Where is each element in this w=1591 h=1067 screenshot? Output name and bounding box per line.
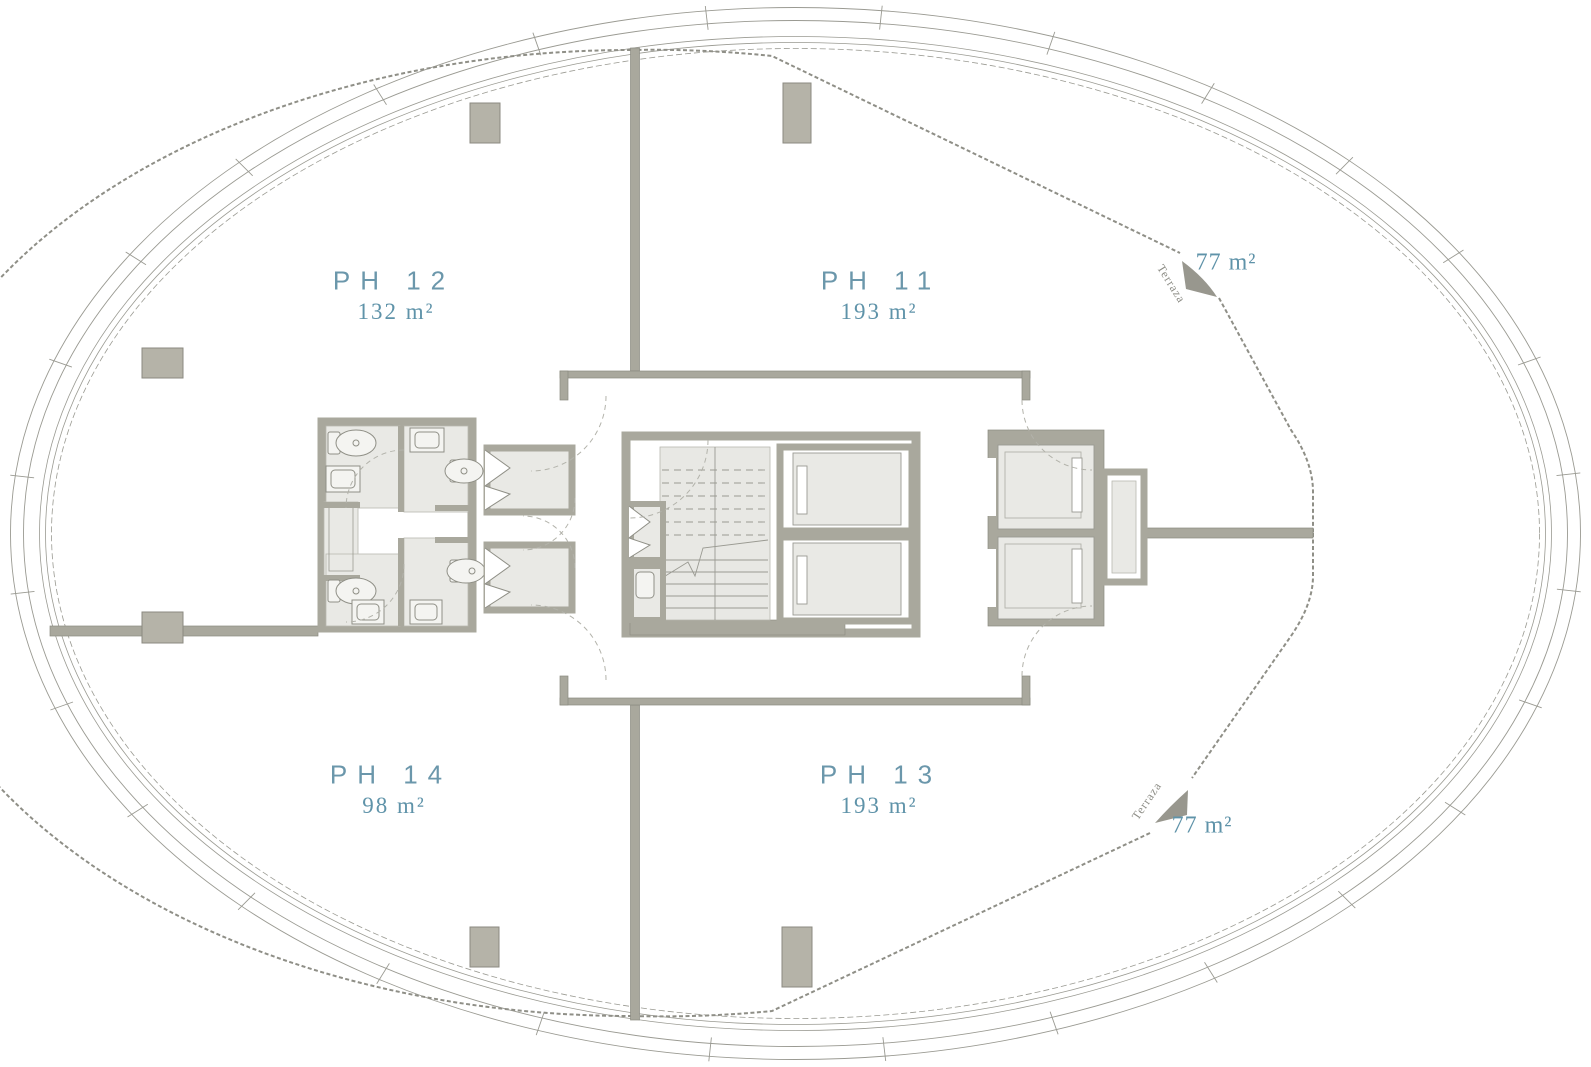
railing-bottomright	[1192, 533, 1313, 778]
facade-tick	[1445, 802, 1465, 815]
elevator-car	[793, 453, 901, 525]
facade-tick	[880, 6, 883, 30]
unit-label-ph12: PH 12	[333, 266, 455, 297]
facade-tick	[1205, 962, 1218, 982]
north-party-wall	[631, 48, 640, 371]
railing-topright	[631, 50, 1180, 253]
lobby-south-wall-return-w	[560, 676, 568, 705]
west-party-wall	[50, 626, 318, 636]
sink-icon	[410, 600, 442, 624]
lobby-south-wall	[560, 698, 1030, 705]
elevator-door-opening	[986, 458, 996, 516]
facade-tick	[128, 804, 148, 817]
east-elevator-block	[986, 430, 1144, 626]
sink-icon	[410, 428, 444, 452]
facade-tick	[883, 1037, 886, 1061]
facade-tick	[1443, 250, 1463, 263]
lobby-north-wall-return-e	[1022, 371, 1030, 400]
unit-area-ph11: 193 m²	[840, 299, 917, 325]
south-party-wall	[631, 705, 640, 1020]
unit-area-ph14: 98 m²	[362, 793, 426, 819]
toilet-icon	[447, 559, 485, 583]
unit-label-ph11: PH 11	[821, 266, 941, 297]
facade-tick	[1338, 891, 1355, 908]
annex-room-inner	[1112, 481, 1136, 573]
railing-bottomright-2	[631, 833, 1150, 1016]
terrace-area-bottom: 77 m²	[1172, 813, 1233, 840]
facade-tick	[705, 6, 708, 30]
unit-label-ph14: PH 14	[330, 760, 452, 791]
stair-block	[626, 436, 916, 635]
elevator-door-panel	[1072, 458, 1082, 512]
wc-sink-icon	[636, 572, 654, 598]
toilet-icon	[328, 430, 376, 456]
facade-tick	[11, 591, 35, 594]
column	[783, 83, 811, 143]
railing-topright-2	[1219, 298, 1313, 533]
floor-plan-canvas: PH 12 132 m² PH 11 193 m² PH 14 98 m² PH…	[0, 0, 1591, 1067]
facade-tick	[1557, 473, 1581, 476]
storage-room	[487, 545, 572, 610]
storage-rooms	[485, 448, 572, 610]
unit-area-ph13: 193 m²	[840, 793, 917, 819]
facade-tick	[377, 963, 390, 983]
terrace-arrows	[1155, 261, 1217, 823]
railing-left-arc	[0, 50, 631, 1016]
column	[782, 927, 812, 987]
column	[142, 348, 183, 378]
stair-block-elevators	[780, 447, 912, 621]
facade-tick	[126, 252, 146, 265]
lobby-north-wall	[560, 371, 1030, 378]
lobby-north-wall-return-w	[560, 371, 568, 400]
door-arc	[531, 605, 606, 680]
unit-area-ph12: 132 m²	[357, 299, 434, 325]
lobby-south-wall-return-e	[1022, 676, 1030, 705]
bathroom-block	[322, 422, 572, 628]
terrace-area-top: 77 m²	[1196, 250, 1257, 277]
elevator-car	[793, 543, 901, 615]
elevator-door-opening	[986, 549, 996, 607]
facade-tick	[1202, 83, 1215, 103]
facade-tick	[238, 893, 255, 910]
elevator-door-panel	[797, 466, 807, 514]
column	[470, 927, 499, 967]
facade-tick	[10, 475, 34, 478]
column	[142, 612, 183, 643]
facade-tick	[1557, 589, 1581, 592]
east-party-wall	[1143, 528, 1313, 538]
toilet-icon	[445, 459, 483, 483]
facade-tick	[374, 85, 387, 105]
floor-plan-drawing	[0, 0, 1591, 1067]
elevator-door-panel	[797, 556, 807, 604]
facade-tick	[709, 1037, 712, 1061]
sink-icon	[326, 466, 360, 492]
facade-tick	[1336, 157, 1353, 174]
column	[470, 103, 500, 143]
facade-tick	[236, 159, 253, 176]
storage-room	[487, 448, 572, 512]
elevator-door-panel	[1072, 549, 1082, 603]
unit-label-ph13: PH 13	[820, 760, 942, 791]
